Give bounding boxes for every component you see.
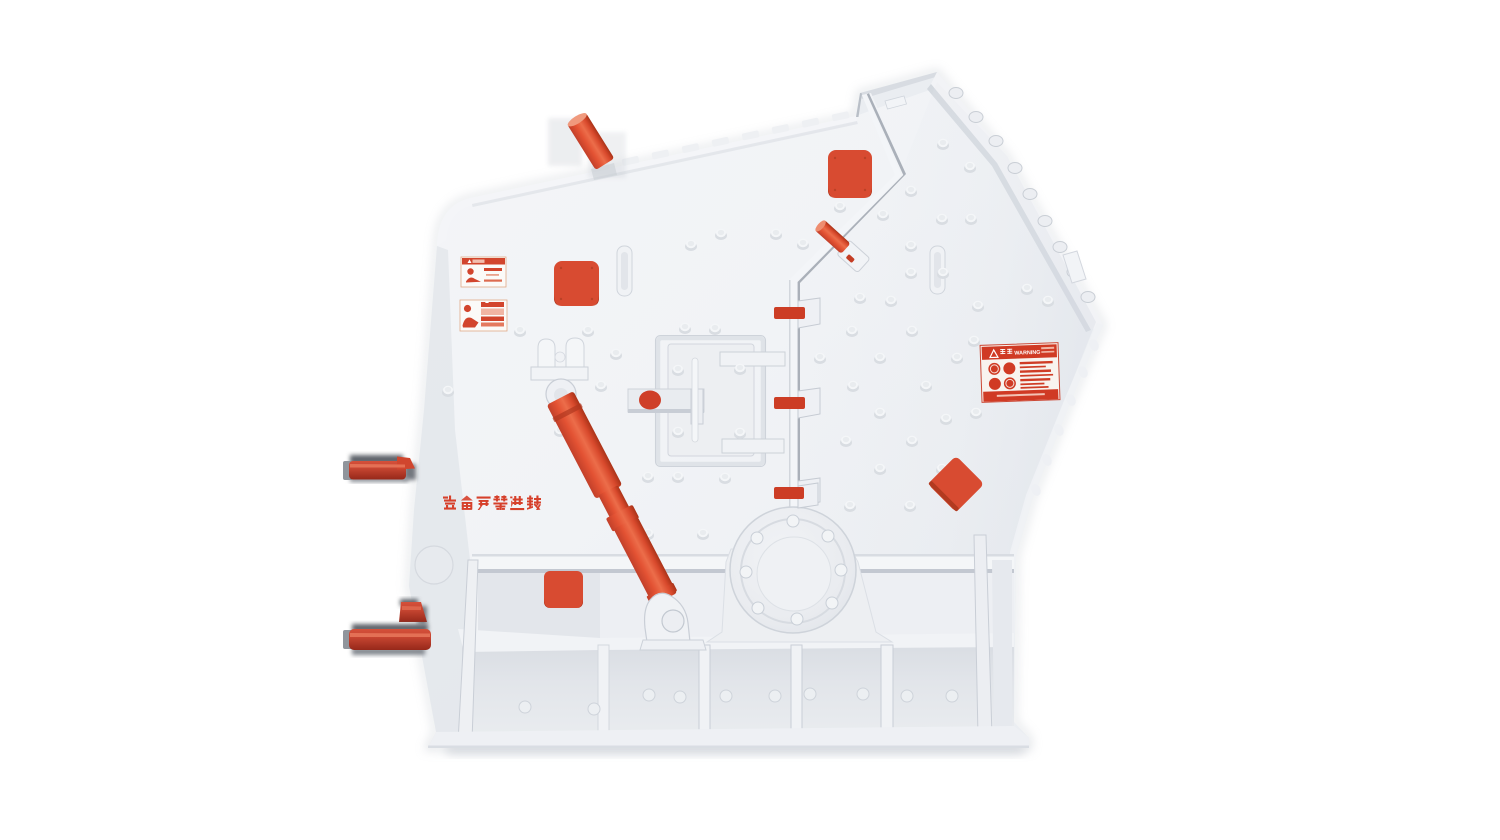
svg-text:WARNING: WARNING [1014, 350, 1040, 357]
